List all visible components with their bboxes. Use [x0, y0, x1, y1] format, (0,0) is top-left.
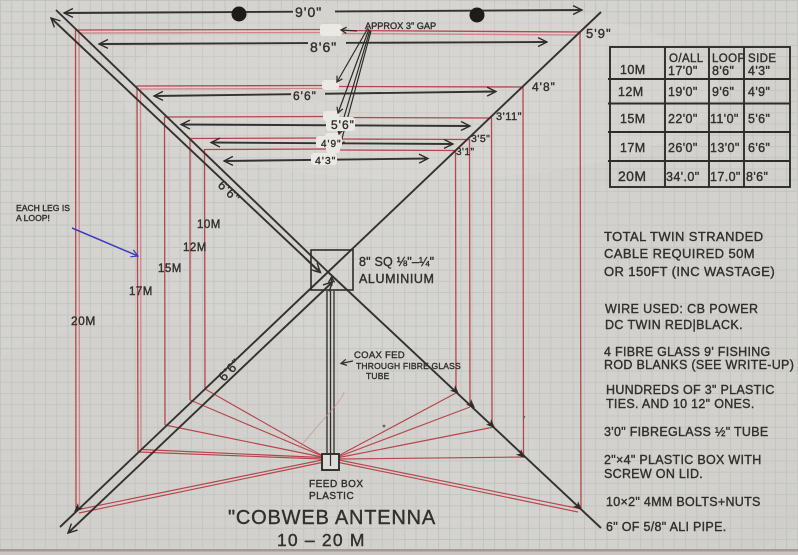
svg-text:17.0": 17.0"	[710, 170, 741, 184]
svg-text:2"×4" PLASTIC BOX WITH: 2"×4" PLASTIC BOX WITH	[604, 453, 762, 467]
svg-text:20M: 20M	[618, 168, 646, 184]
svg-text:OR 150FT (INC WASTAGE): OR 150FT (INC WASTAGE)	[604, 264, 775, 279]
svg-text:4'9": 4'9"	[748, 85, 770, 99]
svg-text:5'6": 5'6"	[331, 118, 355, 132]
svg-text:4'9": 4'9"	[321, 139, 342, 150]
svg-text:6'6": 6'6"	[293, 89, 317, 103]
svg-text:FEED BOX: FEED BOX	[309, 479, 364, 490]
svg-text:5'9": 5'9"	[586, 26, 612, 41]
svg-text:4'3": 4'3"	[315, 155, 336, 167]
svg-text:20M: 20M	[71, 314, 96, 328]
svg-text:PLASTIC: PLASTIC	[309, 491, 354, 502]
svg-text:"COBWEB ANTENNA: "COBWEB ANTENNA	[228, 507, 436, 529]
svg-text:22'0": 22'0"	[668, 112, 698, 126]
svg-text:TIES. AND 10 12" ONES.: TIES. AND 10 12" ONES.	[606, 397, 755, 411]
svg-text:THROUGH FIBRE GLASS: THROUGH FIBRE GLASS	[356, 361, 461, 371]
svg-text:9'6": 9'6"	[712, 85, 734, 99]
svg-text:6" OF 5/8" ALI PIPE.: 6" OF 5/8" ALI PIPE.	[606, 520, 726, 534]
svg-text:17M: 17M	[129, 286, 153, 298]
svg-text:8'6": 8'6"	[712, 64, 734, 78]
svg-text:TOTAL TWIN STRANDED: TOTAL TWIN STRANDED	[604, 229, 764, 244]
svg-text:ALUMINIUM: ALUMINIUM	[359, 272, 435, 286]
svg-text:8" SQ ⅛"–¼": 8" SQ ⅛"–¼"	[359, 255, 434, 269]
svg-text:26'0": 26'0"	[668, 141, 698, 155]
svg-text:3'1": 3'1"	[456, 147, 475, 158]
svg-text:HUNDREDS OF 3" PLASTIC: HUNDREDS OF 3" PLASTIC	[606, 383, 775, 397]
svg-text:17'0": 17'0"	[668, 64, 698, 78]
svg-text:15M: 15M	[620, 112, 646, 126]
svg-text:10 – 20 M: 10 – 20 M	[277, 530, 366, 550]
svg-text:10M: 10M	[620, 63, 646, 77]
svg-text:8'6": 8'6"	[310, 39, 337, 55]
svg-text:17M: 17M	[620, 141, 646, 155]
svg-text:12M: 12M	[183, 242, 207, 254]
svg-text:13'0": 13'0"	[710, 141, 740, 155]
svg-text:19'0": 19'0"	[668, 85, 698, 99]
svg-text:9'0": 9'0"	[295, 4, 322, 20]
svg-text:COAX FED: COAX FED	[354, 350, 405, 361]
svg-text:CABLE REQUIRED 50M: CABLE REQUIRED 50M	[604, 246, 755, 261]
svg-text:10M: 10M	[197, 219, 221, 231]
svg-text:6'6": 6'6"	[748, 141, 770, 155]
svg-text:10×2" 4MM BOLTS+NUTS: 10×2" 4MM BOLTS+NUTS	[606, 495, 761, 509]
svg-text:4 FIBRE GLASS 9' FISHING: 4 FIBRE GLASS 9' FISHING	[604, 345, 771, 359]
svg-text:11'0": 11'0"	[710, 112, 739, 126]
svg-text:A LOOP!: A LOOP!	[16, 213, 50, 223]
svg-text:4'3": 4'3"	[748, 64, 770, 78]
svg-text:34'.0": 34'.0"	[666, 170, 700, 184]
svg-text:8'6": 8'6"	[746, 170, 768, 184]
svg-text:3'11": 3'11"	[496, 111, 522, 123]
svg-text:DC TWIN RED|BLACK.: DC TWIN RED|BLACK.	[605, 318, 743, 332]
svg-text:4'8": 4'8"	[532, 80, 556, 94]
svg-text:3'0" FIBREGLASS ½" TUBE: 3'0" FIBREGLASS ½" TUBE	[604, 425, 769, 439]
svg-text:WIRE USED: CB POWER: WIRE USED: CB POWER	[605, 302, 758, 316]
svg-text:SCREW ON LID.: SCREW ON LID.	[604, 467, 703, 481]
svg-text:APPROX 3" GAP: APPROX 3" GAP	[365, 21, 436, 31]
svg-text:EACH LEG IS: EACH LEG IS	[16, 203, 70, 213]
svg-text:15M: 15M	[158, 263, 182, 275]
svg-text:12M: 12M	[618, 85, 644, 99]
svg-text:5'6": 5'6"	[748, 112, 770, 126]
svg-text:3'5": 3'5"	[471, 133, 490, 145]
svg-text:ROD BLANKS (SEE WRITE-UP): ROD BLANKS (SEE WRITE-UP)	[604, 358, 794, 372]
svg-text:TUBE: TUBE	[366, 371, 390, 381]
